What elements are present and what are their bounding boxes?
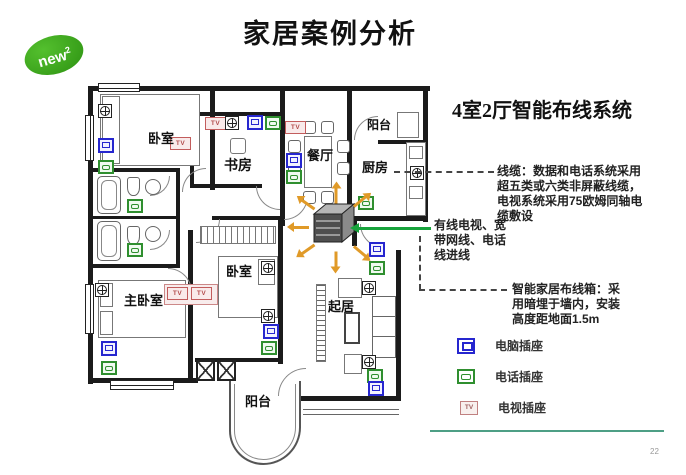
phone-socket-icon [127,199,143,213]
ceiling-lamp-icon [261,261,275,275]
wall-segment [396,250,401,401]
ceiling-lamp-icon [410,166,424,180]
phone-socket-icon [127,243,143,257]
fridge [397,112,419,138]
door-arc [182,168,206,192]
ceiling-lamp-icon [261,309,275,323]
wall-segment [88,264,178,268]
tv-cabinet [316,284,326,362]
kitchen-stove [409,186,423,199]
pillow [100,311,113,335]
incoming-line-arrow-icon [357,227,431,230]
window-x [196,360,215,381]
window [98,83,140,92]
legend-label: 电视插座 [498,399,546,416]
phone-socket-icon [265,116,281,130]
phone-socket-icon [261,341,277,355]
slide: new2 家居案例分析 4室2厅智能布线系统 [0,0,686,475]
callout-line [419,236,421,290]
cable-note: 线缆：数据和电话系统采用 超五类或六类非屏蔽线缆， 电视系统采用75欧姆同轴电 … [497,164,657,224]
window [85,284,94,334]
ceiling-lamp-icon [362,281,376,295]
room-label-balcony-bottom: 阳台 [245,391,271,410]
computer-socket-icon [247,115,263,130]
ceiling-lamp-icon [362,355,376,369]
toilet [127,177,140,196]
legend-row-computer: 电脑插座 [457,337,543,354]
tv-socket-icon: TV [167,287,188,300]
inlet-note: 有线电视、宽 带网线、电话 线进线 [434,218,524,263]
coffee-table [344,312,360,344]
room-label-balcony-top: 阳台 [367,116,391,133]
sink [145,226,161,242]
chair [337,140,350,153]
desk [230,138,246,154]
side-table [344,354,362,374]
phone-socket-icon [98,160,114,174]
window [110,380,174,390]
room-label-bedroom-2: 卧室 [226,261,252,280]
phone-socket-icon [286,170,302,184]
legend-label: 电脑插座 [495,337,543,354]
wardrobe [200,226,276,244]
box-note: 智能家居布线箱：采 用暗埋于墙内，安装 高度距地面1.5m [512,282,642,327]
callout-line [419,289,507,291]
room-label-kitchen: 厨房 [362,157,388,176]
legend-row-tv: TV 电视插座 [460,399,546,416]
door-arc [256,186,280,210]
wall-segment [88,216,176,219]
legend-label: 电话插座 [495,368,543,385]
arrow-down-right-icon [353,245,367,258]
wall-segment [352,216,428,221]
ceiling-lamp-icon [95,283,109,297]
sink [145,179,161,195]
wall-segment [210,86,215,190]
room-label-study: 书房 [224,155,252,175]
arrow-left-icon [293,226,309,229]
chair [288,140,301,153]
chair [321,121,334,134]
window-x [217,360,236,381]
room-label-master-bedroom: 主卧室 [124,290,163,309]
bathtub [97,176,121,214]
ceiling-lamp-icon [225,116,239,130]
tv-socket-icon: TV [205,117,226,130]
armchair [338,278,362,298]
chair [337,162,350,175]
tv-socket-icon: TV [460,401,478,415]
page-number: 22 [650,447,659,456]
computer-socket-icon [101,341,117,356]
computer-socket-icon [98,138,114,153]
room-label-bedroom-1: 卧室 [148,128,174,147]
arrow-down-icon [335,252,338,268]
window [85,115,94,161]
room-label-living: 起居 [328,296,354,315]
tv-socket-icon: TV [191,287,212,300]
phone-socket-icon [457,369,475,384]
arrow-up-icon [335,188,338,204]
kitchen-sink [409,146,423,159]
phone-socket-icon [101,361,117,375]
computer-socket-icon [263,324,279,339]
phone-socket-icon [369,261,385,275]
door-arc [278,368,306,396]
tv-socket-icon: TV [285,121,306,134]
computer-socket-icon [457,338,475,354]
callout-line [394,171,494,173]
floor-plan: TV TV TV TV TV 卧室 书房 餐厅 阳台 厨房 主卧室 卧 [0,0,686,475]
wall-segment [188,230,193,380]
room-label-dining: 餐厅 [307,145,333,164]
wall-segment [212,216,282,220]
wall-segment [300,396,401,401]
computer-socket-icon [368,381,384,396]
legend-row-phone: 电话插座 [457,368,543,385]
wall-segment [278,216,283,364]
wall-segment [176,168,180,268]
sofa [372,296,396,358]
ceiling-lamp-icon [98,104,112,118]
computer-socket-icon [286,153,302,168]
entry-step [303,409,399,415]
footer-divider [430,430,664,432]
bathtub [97,221,121,261]
